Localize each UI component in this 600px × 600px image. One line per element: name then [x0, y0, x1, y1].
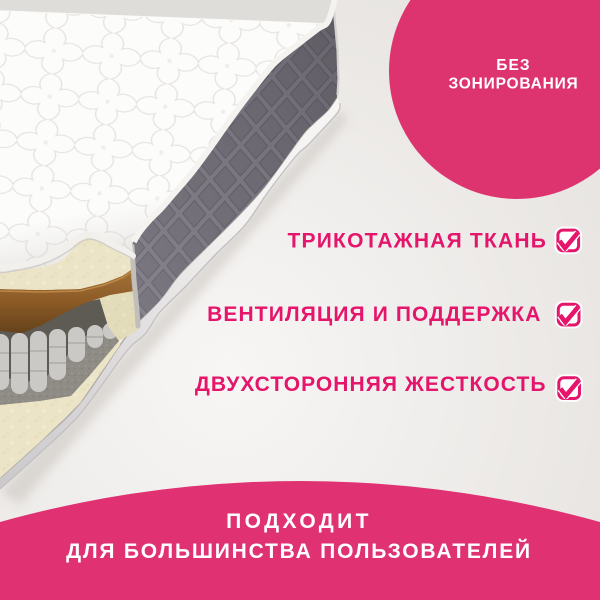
- svg-text:ПОДХОДИТ: ПОДХОДИТ: [226, 510, 372, 533]
- svg-text:ДВУХСТОРОННЯЯ ЖЕСТКОСТЬ: ДВУХСТОРОННЯЯ ЖЕСТКОСТЬ: [195, 373, 547, 396]
- svg-text:ЗОНИРОВАНИЯ: ЗОНИРОВАНИЯ: [449, 76, 579, 93]
- svg-text:ВЕНТИЛЯЦИЯ И ПОДДЕРЖКА: ВЕНТИЛЯЦИЯ И ПОДДЕРЖКА: [207, 303, 541, 326]
- svg-text:БЕЗ: БЕЗ: [496, 57, 531, 74]
- svg-text:ТРИКОТАЖНАЯ ТКАНЬ: ТРИКОТАЖНАЯ ТКАНЬ: [288, 229, 547, 252]
- svg-text:ДЛЯ БОЛЬШИНСТВА ПОЛЬЗОВАТЕЛЕЙ: ДЛЯ БОЛЬШИНСТВА ПОЛЬЗОВАТЕЛЕЙ: [66, 539, 532, 563]
